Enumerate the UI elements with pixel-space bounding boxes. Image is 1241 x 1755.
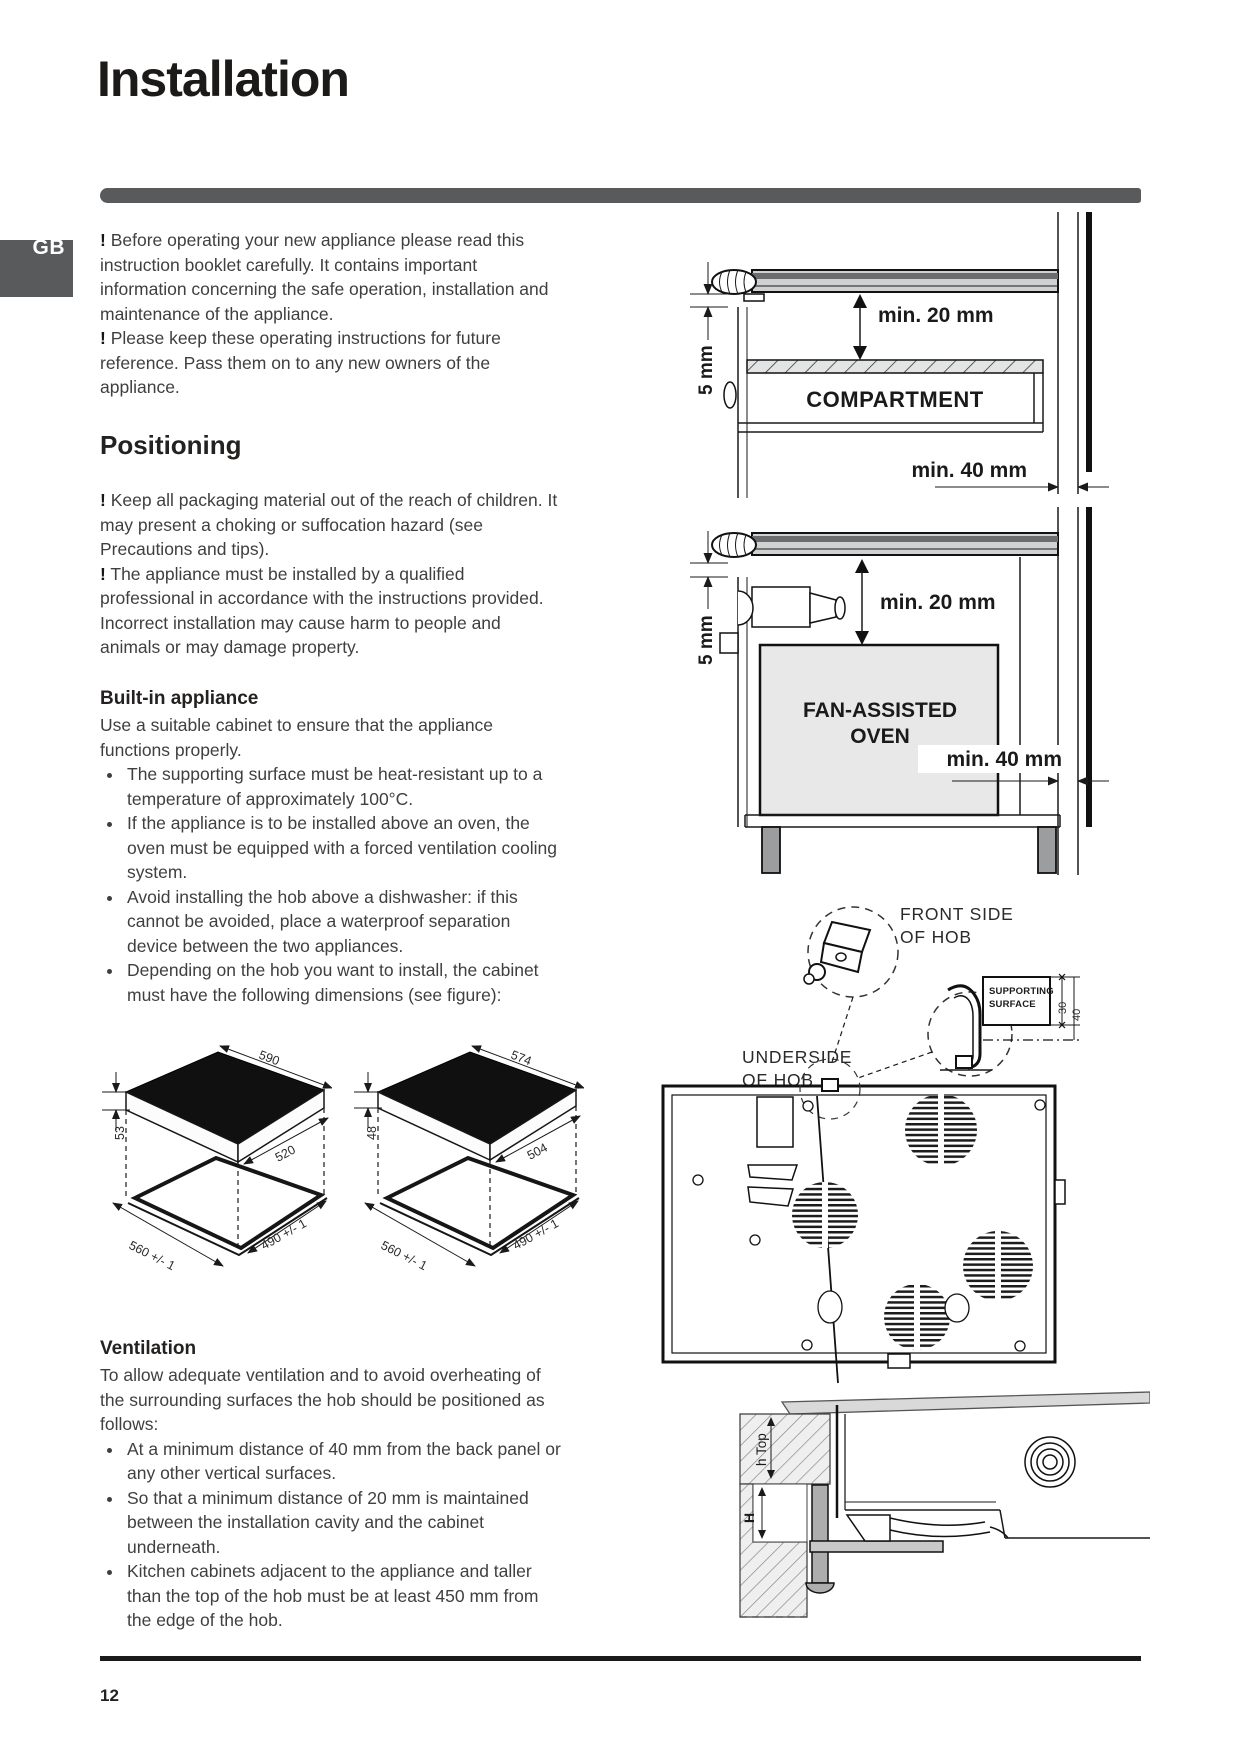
min20-arrow (853, 294, 867, 360)
warning-mark: ! (100, 230, 106, 250)
fan-oven-diagram: 5 mm min. 20 mm FAN-ASSISTED OVEN min. 4… (690, 505, 1110, 880)
ventilation-intro: To allow adequate ventilation and to avo… (100, 1363, 562, 1437)
bullet-item: The supporting surface must be heat-resi… (124, 762, 562, 811)
supporting-label-line2: SURFACE (989, 999, 1036, 1010)
front-side-label-line1: FRONT SIDE (900, 904, 1014, 924)
compartment-diagram: 5 mm min. 20 mm COMPARTMENT min. 40 mm (690, 210, 1110, 500)
hob-cross-section (752, 533, 1058, 555)
cutout-drawing (128, 1158, 327, 1255)
wall-lines (1058, 507, 1092, 875)
ventilation-heading: Ventilation (100, 1338, 196, 1360)
min20-label: min. 20 mm (880, 591, 996, 614)
bullet-item: At a minimum distance of 40 mm from the … (124, 1437, 562, 1486)
warning-mark: ! (100, 564, 106, 584)
min40-label: min. 40 mm (946, 748, 1062, 771)
dim-30-label: 30 (1057, 1002, 1069, 1014)
positioning-text-2: The appliance must be installed by a qua… (100, 564, 544, 658)
dim-width: 574 (509, 1048, 534, 1069)
oven-label-line2: OVEN (850, 725, 910, 748)
wall-lines (1058, 212, 1092, 494)
gasket-icon (712, 533, 756, 557)
intro-paragraph-2: ! Please keep these operating instructio… (100, 326, 562, 400)
vent-grille (905, 1094, 977, 1166)
page-number: 12 (100, 1686, 119, 1706)
built-in-bullet-list: The supporting surface must be heat-resi… (100, 762, 562, 1007)
manual-page: { "page": { "title": "Installation", "la… (0, 0, 1241, 1755)
footer-rule (100, 1656, 1141, 1661)
bullet-item: Depending on the hob you want to install… (124, 958, 562, 1007)
section-diagram: h Top H (640, 1390, 1150, 1630)
gap-label: 5 mm (696, 615, 717, 665)
compartment-label: COMPARTMENT (806, 387, 983, 412)
header-rule (100, 188, 1141, 203)
vent-grille (792, 1182, 858, 1248)
positioning-section: ! Keep all packaging material out of the… (100, 488, 562, 660)
ventilation-bullet-list: At a minimum distance of 40 mm from the … (100, 1437, 562, 1633)
built-in-heading: Built-in appliance (100, 688, 258, 710)
built-in-section: Use a suitable cabinet to ensure that th… (100, 713, 562, 1007)
hob-mounting-diagram: FRONT SIDE OF HOB SUPPORTING SURFACE 30 … (610, 880, 1080, 1385)
clip-detail-circle (804, 907, 898, 997)
min20-arrow (855, 559, 869, 645)
bullet-item: If the appliance is to be installed abov… (124, 811, 562, 885)
intro-section: ! Before operating your new appliance pl… (100, 228, 562, 400)
bullet-item: So that a minimum distance of 20 mm is m… (124, 1486, 562, 1560)
hob-figure-590: 590 520 53 560 +/- 1 490 +/- 1 (86, 1044, 332, 1272)
dim-height: 48 (365, 1126, 379, 1140)
oven-label-line1: FAN-ASSISTED (803, 699, 957, 722)
base-and-legs (745, 815, 1060, 873)
page-title: Installation (97, 50, 349, 108)
positioning-paragraph-1: ! Keep all packaging material out of the… (100, 488, 562, 562)
built-in-intro: Use a suitable cabinet to ensure that th… (100, 713, 562, 762)
supporting-label-line1: SUPPORTING (989, 986, 1054, 997)
warning-mark: ! (100, 490, 106, 510)
language-tab-label: GB (33, 236, 66, 260)
h-top-label: h Top (754, 1433, 769, 1466)
min20-label: min. 20 mm (878, 304, 994, 327)
dim-cutout-width: 560 +/- 1 (127, 1238, 178, 1272)
ventilation-section: To allow adequate ventilation and to avo… (100, 1363, 562, 1633)
intro-text-1: Before operating your new appliance plea… (100, 230, 548, 324)
hob-figure-574: 574 504 48 560 +/- 1 490 +/- 1 (338, 1044, 584, 1272)
language-tab: GB (0, 240, 73, 297)
dim-height: 53 (113, 1126, 127, 1140)
hob-cross-section (752, 270, 1058, 292)
hob-slab-drawing (126, 1052, 324, 1162)
positioning-text-1: Keep all packaging material out of the r… (100, 490, 557, 559)
hob-slab-drawing (378, 1052, 576, 1160)
cabinet-outline (724, 307, 747, 498)
positioning-heading: Positioning (100, 430, 242, 461)
dim-width: 590 (257, 1048, 282, 1069)
supporting-surface-box: SUPPORTING SURFACE (983, 977, 1054, 1025)
mounting-bracket (720, 587, 845, 653)
underside-panel (663, 1059, 1055, 1383)
gap-label: 5 mm (696, 345, 717, 395)
dim-cutout-width: 560 +/- 1 (379, 1238, 430, 1272)
bullet-item: Kitchen cabinets adjacent to the applian… (124, 1559, 562, 1633)
intro-paragraph-1: ! Before operating your new appliance pl… (100, 228, 562, 326)
hob-dimension-figures: 590 520 53 560 +/- 1 490 +/- 1 (86, 1044, 586, 1274)
vent-grille (884, 1284, 950, 1350)
vent-grille (963, 1231, 1033, 1301)
intro-text-2: Please keep these operating instructions… (100, 328, 501, 397)
warning-mark: ! (100, 328, 106, 348)
dim-40-label: 40 (1071, 1009, 1080, 1021)
positioning-paragraph-2: ! The appliance must be installed by a q… (100, 562, 562, 660)
front-side-label-line2: OF HOB (900, 927, 972, 947)
min40-label: min. 40 mm (911, 459, 1027, 482)
h-label: H (741, 1513, 757, 1523)
bullet-item: Avoid installing the hob above a dishwas… (124, 885, 562, 959)
cutout-drawing (380, 1158, 579, 1255)
